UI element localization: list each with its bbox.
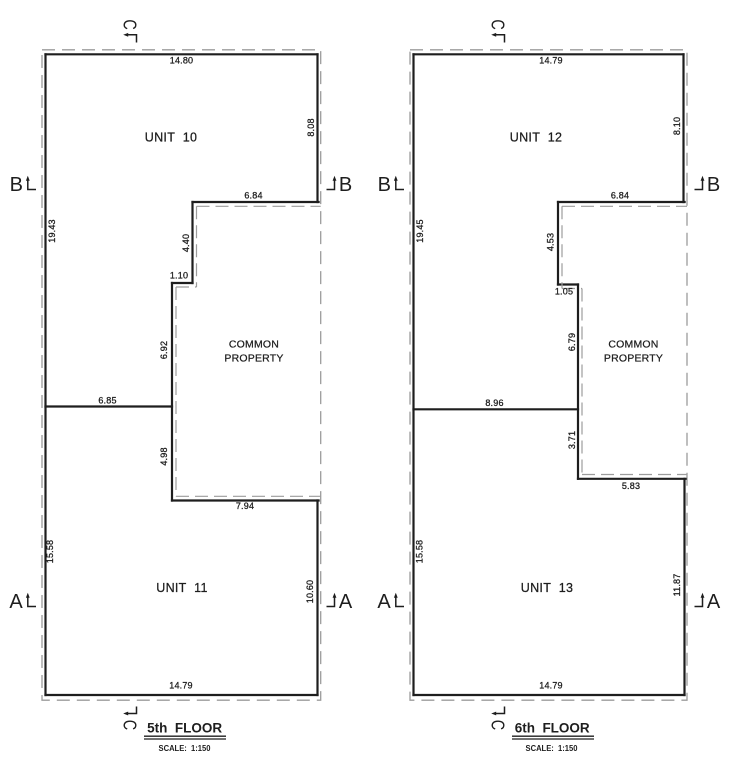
- svg-text:8.08: 8.08: [306, 118, 316, 136]
- svg-text:15.58: 15.58: [45, 540, 55, 564]
- svg-text:1.05: 1.05: [555, 287, 573, 297]
- svg-text:14.79: 14.79: [169, 680, 193, 690]
- svg-text:4.98: 4.98: [159, 447, 169, 465]
- svg-text:UNIT 13: UNIT 13: [521, 581, 573, 595]
- svg-text:14.80: 14.80: [170, 56, 194, 66]
- svg-text:14.79: 14.79: [539, 56, 563, 66]
- svg-text:4.40: 4.40: [181, 234, 191, 252]
- svg-text:PROPERTY: PROPERTY: [224, 353, 283, 365]
- svg-text:8.10: 8.10: [672, 117, 682, 135]
- svg-text:B: B: [378, 174, 391, 196]
- svg-text:C: C: [119, 19, 140, 29]
- svg-text:11.87: 11.87: [672, 574, 682, 597]
- svg-text:19.43: 19.43: [47, 219, 57, 243]
- svg-text:B: B: [10, 174, 23, 196]
- svg-text:C: C: [487, 720, 508, 730]
- svg-text:7.94: 7.94: [236, 501, 254, 511]
- svg-text:SCALE: 1:150: SCALE: 1:150: [159, 743, 211, 753]
- svg-text:19.45: 19.45: [415, 219, 425, 243]
- svg-text:5th FLOOR: 5th FLOOR: [147, 720, 222, 735]
- svg-text:10.60: 10.60: [305, 580, 315, 604]
- svg-text:6.84: 6.84: [611, 191, 629, 201]
- svg-text:15.58: 15.58: [415, 540, 425, 564]
- svg-text:B: B: [339, 174, 352, 196]
- svg-text:PROPERTY: PROPERTY: [604, 353, 663, 365]
- svg-text:UNIT 10: UNIT 10: [145, 130, 197, 144]
- svg-text:6.84: 6.84: [244, 191, 262, 201]
- svg-text:6.92: 6.92: [159, 341, 169, 359]
- svg-text:6th FLOOR: 6th FLOOR: [515, 720, 590, 735]
- svg-text:B: B: [707, 174, 720, 196]
- svg-text:C: C: [487, 19, 508, 29]
- svg-text:UNIT 11: UNIT 11: [156, 581, 207, 595]
- svg-text:SCALE: 1:150: SCALE: 1:150: [526, 743, 578, 753]
- svg-text:6.79: 6.79: [567, 333, 577, 351]
- svg-text:UNIT 12: UNIT 12: [510, 130, 562, 144]
- svg-text:COMMON: COMMON: [608, 338, 658, 350]
- svg-text:COMMON: COMMON: [229, 338, 279, 350]
- svg-text:1.10: 1.10: [170, 270, 188, 280]
- svg-text:3.71: 3.71: [567, 431, 577, 449]
- svg-text:A: A: [377, 591, 391, 613]
- svg-text:A: A: [707, 591, 721, 613]
- svg-text:C: C: [119, 720, 140, 730]
- svg-text:6.85: 6.85: [98, 395, 116, 405]
- svg-text:8.96: 8.96: [485, 398, 503, 408]
- svg-text:A: A: [339, 591, 353, 613]
- svg-text:A: A: [9, 591, 23, 613]
- svg-text:14.79: 14.79: [539, 680, 563, 690]
- svg-text:4.53: 4.53: [546, 233, 556, 251]
- svg-text:5.83: 5.83: [622, 481, 640, 491]
